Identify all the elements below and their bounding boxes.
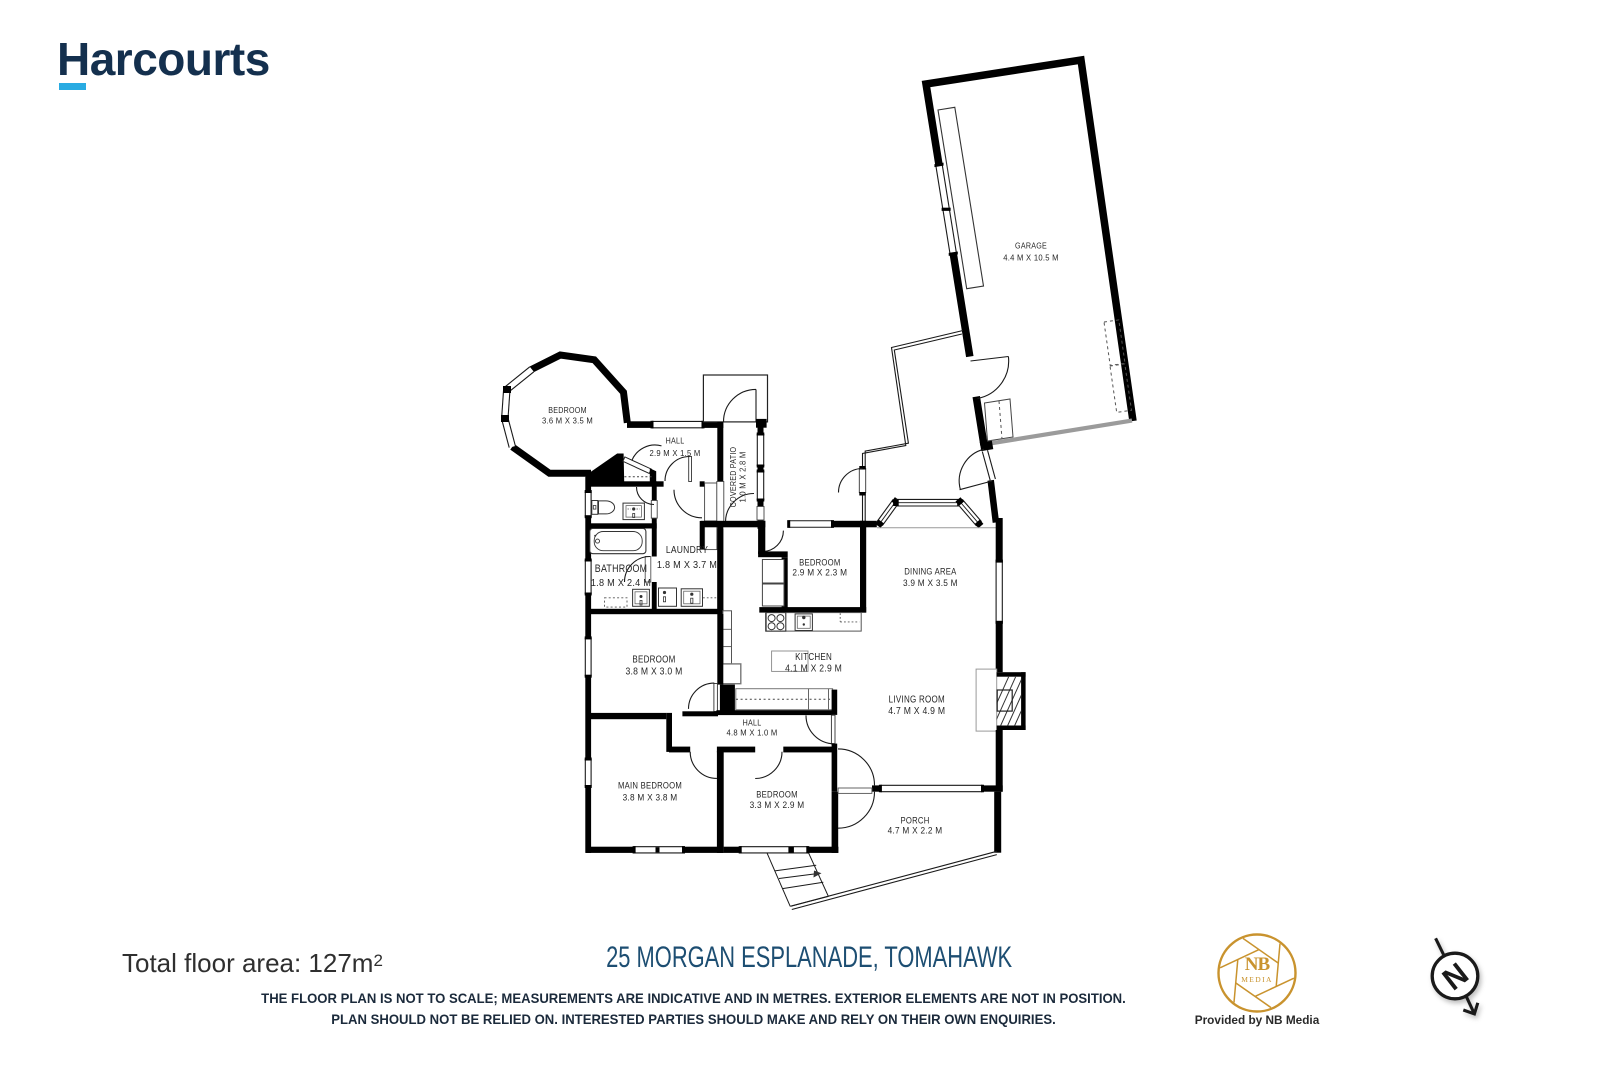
svg-text:BEDROOM: BEDROOM [632, 654, 675, 665]
svg-text:1.8 M X 3.7 M: 1.8 M X 3.7 M [657, 559, 717, 571]
svg-text:3.8 M X 3.8 M: 3.8 M X 3.8 M [623, 792, 678, 803]
svg-text:1.8 M X 2.4 M: 1.8 M X 2.4 M [591, 577, 651, 589]
svg-text:NB: NB [1245, 954, 1271, 975]
svg-text:GARAGE: GARAGE [1015, 241, 1047, 251]
svg-text:HALL: HALL [743, 718, 762, 728]
svg-text:3.6 M X 3.5 M: 3.6 M X 3.5 M [542, 416, 593, 426]
svg-text:4.7 M X 4.9 M: 4.7 M X 4.9 M [888, 706, 945, 717]
svg-text:BATHROOM: BATHROOM [595, 563, 647, 575]
svg-text:4.1 M X 2.9 M: 4.1 M X 2.9 M [785, 663, 842, 674]
svg-text:BEDROOM: BEDROOM [548, 405, 587, 415]
svg-text:KITCHEN: KITCHEN [795, 651, 832, 662]
svg-text:HALL: HALL [666, 436, 685, 446]
svg-text:LAUNDRY: LAUNDRY [666, 544, 709, 556]
svg-text:4.4 M X 10.5 M: 4.4 M X 10.5 M [1003, 253, 1059, 263]
svg-text:3.3 M X 2.9 M: 3.3 M X 2.9 M [750, 800, 805, 811]
svg-text:4.7 M X 2.2 M: 4.7 M X 2.2 M [888, 825, 943, 836]
svg-text:2.9 M X 1.5 M: 2.9 M X 1.5 M [649, 448, 700, 458]
svg-text:MAIN BEDROOM: MAIN BEDROOM [618, 780, 682, 791]
svg-text:LIVING ROOM: LIVING ROOM [889, 694, 945, 705]
svg-text:DINING AREA: DINING AREA [904, 566, 956, 577]
svg-text:4.8 M X 1.0 M: 4.8 M X 1.0 M [726, 728, 777, 738]
svg-text:COVERED PATIO: COVERED PATIO [728, 447, 738, 508]
svg-text:1.0 M X 2.8 M: 1.0 M X 2.8 M [738, 451, 748, 502]
svg-text:MEDIA: MEDIA [1241, 975, 1273, 984]
svg-text:3.8 M X 3.0 M: 3.8 M X 3.0 M [625, 666, 682, 677]
svg-text:3.9 M X 3.5 M: 3.9 M X 3.5 M [903, 577, 958, 588]
svg-text:2.9 M X 2.3 M: 2.9 M X 2.3 M [792, 567, 847, 578]
svg-text:BEDROOM: BEDROOM [756, 789, 797, 800]
